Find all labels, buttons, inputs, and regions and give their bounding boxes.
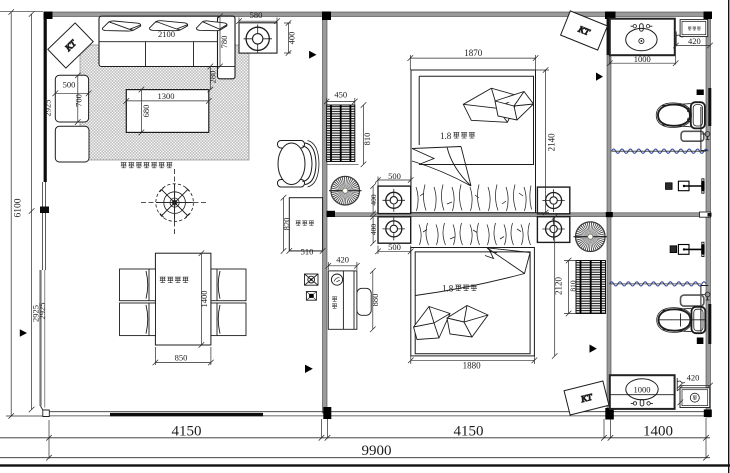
svg-text:810: 810 (569, 280, 578, 292)
svg-text:400: 400 (369, 224, 378, 236)
svg-text:1.8: 1.8 (440, 131, 452, 141)
svg-text:820: 820 (282, 218, 292, 231)
svg-text:500: 500 (63, 80, 76, 90)
svg-text:420: 420 (687, 372, 700, 382)
svg-text:500: 500 (388, 171, 401, 181)
svg-text:9900: 9900 (362, 443, 392, 459)
svg-text:680: 680 (141, 105, 151, 118)
svg-text:6100: 6100 (14, 198, 24, 217)
svg-text:4150: 4150 (172, 424, 202, 440)
svg-text:4150: 4150 (454, 423, 484, 439)
svg-text:1870: 1870 (464, 48, 483, 58)
svg-text:580: 580 (250, 10, 263, 20)
svg-text:880: 880 (370, 294, 380, 307)
svg-text:420: 420 (688, 36, 701, 46)
svg-text:1300: 1300 (158, 91, 175, 101)
svg-text:2925: 2925 (43, 100, 53, 117)
svg-text:2100: 2100 (158, 29, 175, 39)
svg-text:850: 850 (175, 353, 188, 363)
svg-text:420: 420 (336, 255, 349, 265)
svg-text:1880: 1880 (463, 361, 482, 371)
svg-text:1400: 1400 (199, 291, 209, 308)
svg-text:450: 450 (334, 90, 347, 100)
svg-text:2140: 2140 (547, 133, 557, 152)
svg-text:400: 400 (287, 32, 297, 45)
svg-text:400: 400 (369, 194, 378, 206)
svg-text:810: 810 (362, 133, 372, 146)
svg-text:280: 280 (208, 71, 218, 84)
svg-text:780: 780 (219, 36, 229, 49)
svg-text:700: 700 (74, 94, 84, 107)
svg-text:500: 500 (388, 242, 401, 252)
svg-text:2120: 2120 (554, 277, 564, 296)
svg-text:1000: 1000 (634, 54, 651, 64)
svg-text:1000: 1000 (634, 385, 651, 395)
svg-text:1.8: 1.8 (442, 284, 454, 294)
svg-text:2925: 2925 (37, 303, 47, 320)
svg-text:510: 510 (301, 247, 314, 257)
svg-text:1400: 1400 (643, 423, 673, 439)
